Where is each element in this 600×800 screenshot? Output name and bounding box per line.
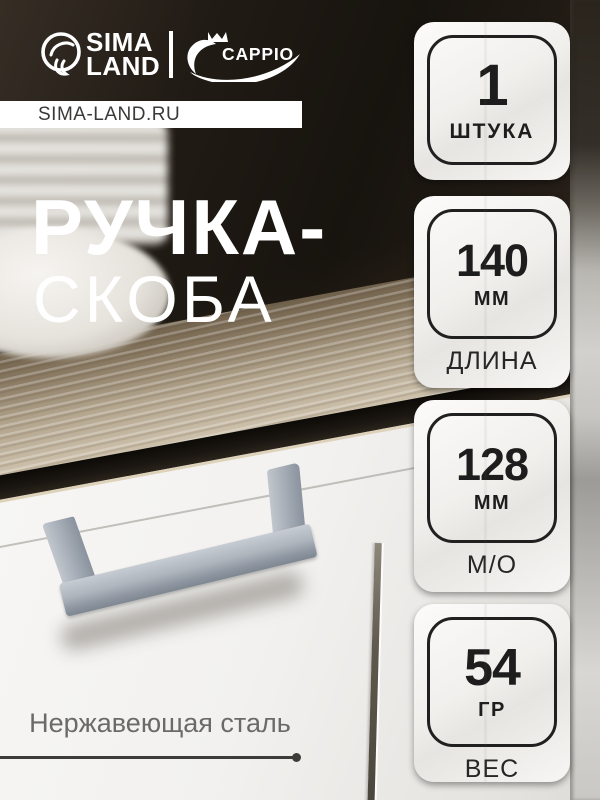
- spec-frame: 1 ШТУКА: [427, 35, 557, 165]
- material-underline-dot: [292, 753, 301, 762]
- spec-value: 1: [476, 57, 507, 115]
- spec-unit: ММ: [474, 288, 510, 311]
- sima-logo-line2: LAND: [86, 55, 160, 79]
- brand-divider: [169, 31, 173, 78]
- product-title-line1: РУЧКА-: [31, 188, 327, 266]
- spec-unit: ШТУКА: [450, 120, 535, 144]
- spec-tile-length: 140 ММ ДЛИНА: [414, 196, 570, 388]
- spec-tile-hole-spacing: 128 ММ М/О: [414, 400, 570, 592]
- material-text: Нержавеющая сталь: [0, 708, 320, 739]
- spec-label: ДЛИНА: [414, 347, 570, 376]
- material-underline: [0, 756, 296, 759]
- website-url: SIMA-LAND.RU: [38, 104, 180, 126]
- cappio-logo-text: CAPPIO: [222, 44, 294, 65]
- sima-land-dolphin-icon: [38, 28, 84, 82]
- sima-land-logo: SIMA LAND: [86, 31, 160, 79]
- website-bar: SIMA-LAND.RU: [0, 101, 302, 128]
- product-card: SIMA LAND CAPPIO SIMA-LAND.RU РУЧКА- СКО…: [0, 0, 600, 800]
- crown-icon: [208, 32, 228, 42]
- right-cabinet-strip: [570, 0, 600, 800]
- spec-tile-quantity: 1 ШТУКА: [414, 22, 570, 180]
- spec-value: 140: [456, 238, 528, 283]
- spec-tile-weight: 54 ГР ВЕС: [414, 604, 570, 782]
- spec-label: ВЕС: [414, 755, 570, 784]
- spec-value: 128: [456, 442, 528, 487]
- product-title-line2: СКОБА: [33, 266, 276, 332]
- spec-value: 54: [464, 642, 520, 694]
- spec-frame: 128 ММ: [427, 413, 557, 543]
- cappio-logo: CAPPIO: [182, 24, 306, 82]
- spec-unit: ММ: [474, 492, 510, 515]
- spec-unit: ГР: [478, 699, 506, 722]
- spec-frame: 140 ММ: [427, 209, 557, 339]
- spec-label: М/О: [414, 551, 570, 580]
- spec-frame: 54 ГР: [427, 617, 557, 747]
